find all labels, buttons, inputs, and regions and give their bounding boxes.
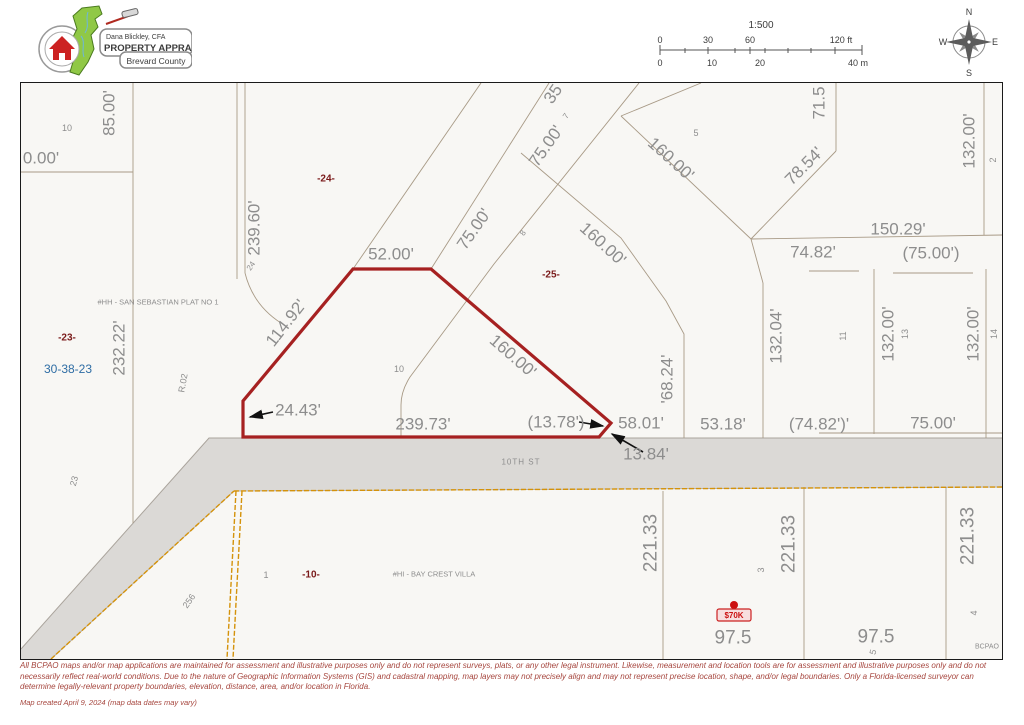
- scale-ft-0: 0: [657, 35, 662, 45]
- parcel-map[interactable]: $70K 85.00'100.00'-24-239.60'24232.22'#H…: [20, 82, 1003, 660]
- logo-name: Dana Blickley, CFA: [106, 34, 166, 41]
- compass-rose: N E S W: [938, 6, 1000, 78]
- map-label: (74.82')': [789, 415, 849, 434]
- map-label: 24: [245, 259, 258, 272]
- map-label: 2: [988, 157, 998, 162]
- map-label: 4: [969, 610, 979, 615]
- bcpao-logo: Dana Blickley, CFA PROPERTY APPRAISER Br…: [22, 5, 192, 79]
- map-label: 239.60': [245, 200, 264, 255]
- map-label: 13.84': [623, 445, 669, 464]
- compass-west: W: [939, 37, 948, 47]
- map-labels: 85.00'100.00'-24-239.60'24232.22'#HH - S…: [23, 83, 1000, 656]
- map-label: 10: [62, 123, 72, 133]
- bcpao-logo-graphic: Dana Blickley, CFA PROPERTY APPRAISER Br…: [22, 5, 192, 79]
- map-label: 132.00': [964, 306, 983, 361]
- map-label: 24.43': [275, 401, 321, 420]
- compass-south: S: [966, 68, 972, 78]
- map-label: 23: [68, 475, 80, 487]
- map-label: R.02: [176, 373, 189, 393]
- scale-ft-60: 60: [745, 35, 755, 45]
- map-label: 71.5: [810, 86, 829, 119]
- bcpao-map-page: Dana Blickley, CFA PROPERTY APPRAISER Br…: [0, 0, 1024, 725]
- map-label: 58.01': [618, 414, 664, 433]
- scale-m-40: 40 m: [848, 58, 868, 68]
- map-label: 114.92': [262, 296, 310, 350]
- map-label: 11: [838, 331, 848, 340]
- map-label: 10TH ST: [501, 458, 540, 467]
- map-label: '68.24': [658, 354, 677, 403]
- logo-title: PROPERTY APPRAISER: [104, 43, 192, 54]
- scale-ft-120: 120 ft: [830, 35, 853, 45]
- map-label: #HI - BAY CREST VILLA: [393, 570, 476, 579]
- map-label: 239.73': [395, 415, 450, 434]
- logo-county: Brevard County: [126, 56, 186, 66]
- map-label: 74.82': [790, 243, 836, 262]
- map-label: 75.00': [910, 414, 956, 433]
- road-10th-st: [21, 438, 1002, 659]
- scale-ratio: 1:500: [748, 20, 773, 31]
- map-label: 35: [540, 83, 566, 107]
- map-label: 85.00': [100, 90, 119, 136]
- map-label: 256: [181, 592, 198, 610]
- map-label: 30-38-23: [44, 362, 92, 376]
- map-label: 97.5: [858, 627, 895, 648]
- map-label: 97.5: [715, 628, 752, 649]
- lot-lines: [21, 83, 1002, 659]
- map-label: 132.04': [767, 308, 786, 363]
- map-label: 10: [394, 364, 404, 374]
- value-marker-dot: [730, 601, 738, 609]
- map-label: (75.00'): [902, 244, 959, 263]
- map-label: 160.00': [644, 133, 698, 184]
- scale-m-20: 20: [755, 58, 765, 68]
- scale-m-10: 10: [707, 58, 717, 68]
- map-label: 150.29': [870, 220, 925, 239]
- map-label: 53.18': [700, 415, 746, 434]
- scale-m-0: 0: [657, 58, 662, 68]
- map-label: 132.00': [879, 306, 898, 361]
- compass-north: N: [966, 7, 973, 17]
- map-label: 7: [561, 111, 571, 120]
- value-marker[interactable]: $70K: [717, 601, 751, 621]
- map-label: 5: [868, 648, 879, 655]
- map-canvas: $70K 85.00'100.00'-24-239.60'24232.22'#H…: [21, 83, 1002, 659]
- map-label: 132.00': [960, 113, 979, 168]
- map-label: 221.33: [958, 507, 979, 565]
- map-label: 160.00': [576, 218, 630, 269]
- compass-hub: [967, 40, 971, 44]
- map-label: 221.33: [779, 515, 800, 573]
- map-label: 5: [693, 128, 698, 138]
- map-label: -25-: [542, 270, 560, 281]
- map-label: 13: [900, 329, 910, 339]
- map-label: #HH - SAN SEBASTIAN PLAT NO 1: [97, 298, 218, 307]
- map-label: -10-: [302, 570, 320, 581]
- map-label: 78.54': [781, 143, 827, 189]
- map-label: -24-: [317, 174, 335, 185]
- map-label: -23-: [58, 333, 76, 344]
- map-label: 221.33: [641, 514, 662, 572]
- map-created-text: Map created April 9, 2024 (map data date…: [20, 698, 197, 707]
- scale-ft-30: 30: [703, 35, 713, 45]
- survey-scope-icon: [122, 8, 139, 18]
- map-label: 8: [518, 228, 528, 237]
- map-label: 75.00': [453, 205, 495, 253]
- map-label: (13.78'): [527, 413, 584, 432]
- disclaimer-text: All BCPAO maps and/or map applications a…: [20, 661, 1002, 693]
- map-label: 3: [756, 567, 766, 572]
- map-label: 75.00': [525, 122, 567, 170]
- map-label: 14: [989, 329, 999, 339]
- map-label: 232.22': [110, 320, 129, 375]
- map-label: 0.00': [23, 149, 59, 168]
- map-label: 1: [263, 570, 268, 580]
- scale-bar: 1:500 0 30 60 120 ft 0 10 20 40 m: [645, 12, 885, 72]
- value-badge-label: $70K: [724, 611, 743, 620]
- map-label: 52.00': [368, 245, 414, 264]
- house-door: [59, 53, 65, 60]
- map-label: BCPAO: [975, 644, 1000, 651]
- compass-east: E: [992, 37, 998, 47]
